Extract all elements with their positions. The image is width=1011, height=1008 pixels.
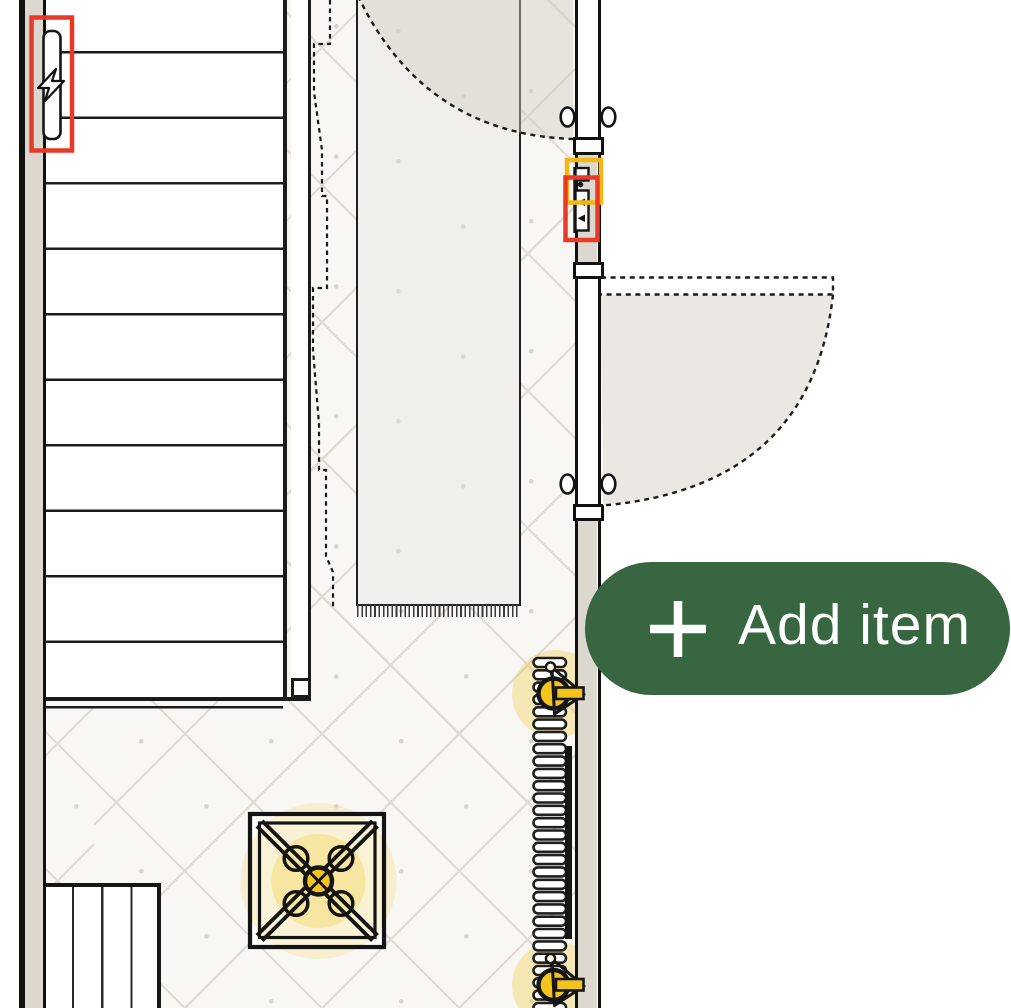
radiator[interactable]: [534, 658, 585, 1008]
radiator-spine: [565, 746, 572, 939]
stair-void-outline: [313, 0, 333, 607]
floor-plan-canvas: Add item: [0, 0, 1011, 1008]
valve-knob: [546, 662, 555, 671]
door-stop-icon: [602, 108, 616, 127]
electrical-panel[interactable]: [38, 31, 64, 139]
switch-box: [576, 191, 589, 231]
door-swing-top[interactable]: [358, 0, 573, 139]
door-swing-area: [358, 0, 573, 139]
switch-dot: [578, 182, 584, 188]
door-stop-icon: [561, 108, 575, 127]
door-stop-icon: [561, 475, 575, 494]
add-item-label: Add item: [738, 597, 971, 660]
plus-icon: [647, 598, 709, 660]
door-swing-area: [601, 295, 833, 506]
ceiling-light[interactable]: [241, 803, 397, 959]
door-stop-icon: [602, 475, 616, 494]
door-leaf-dashed: [601, 278, 833, 295]
valve-handle: [556, 688, 584, 700]
add-item-button[interactable]: Add item: [585, 562, 1010, 695]
door-swing-right[interactable]: [601, 278, 833, 506]
